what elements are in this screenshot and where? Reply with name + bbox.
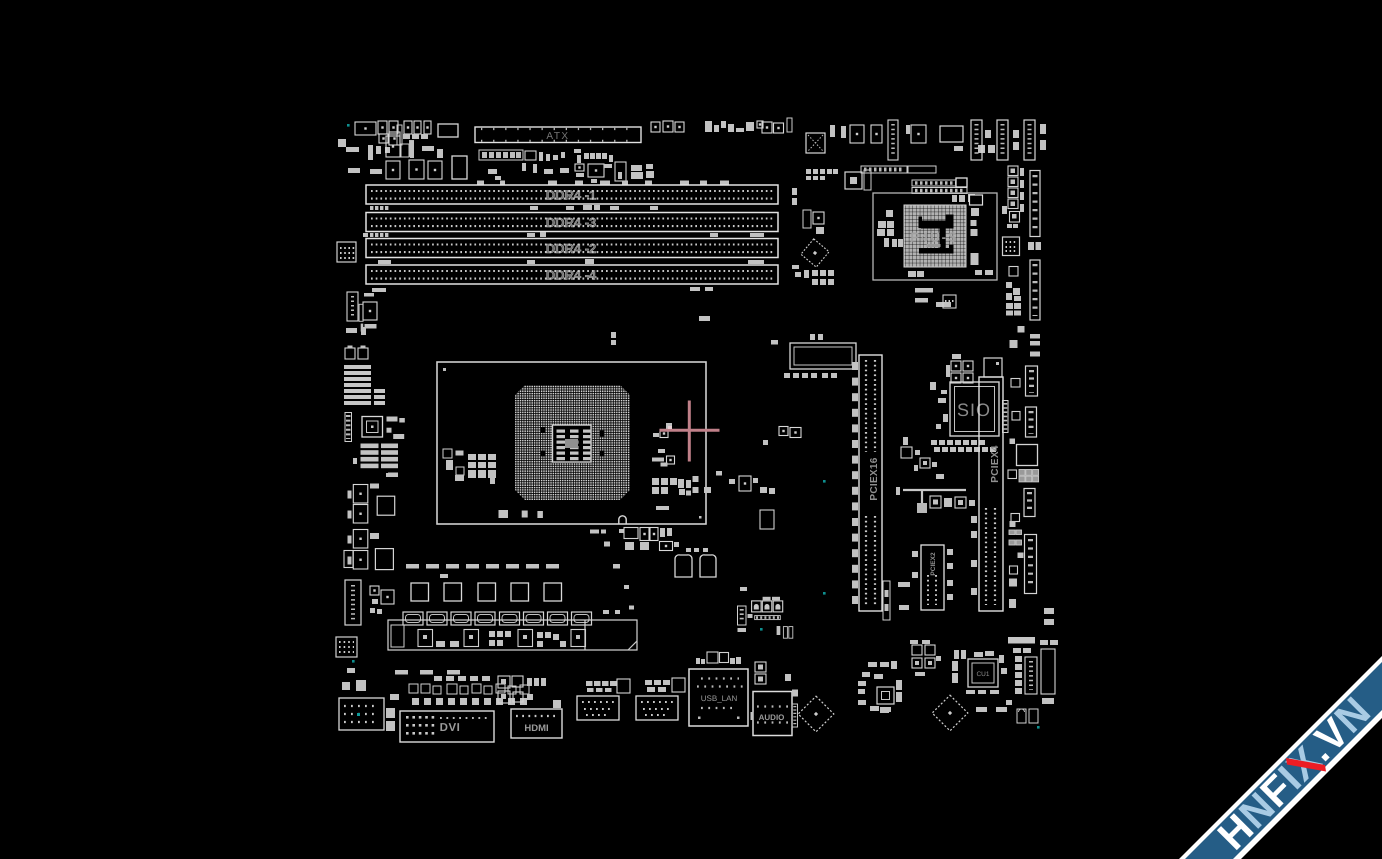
svg-text:DDR4 -1: DDR4 -1 (546, 187, 597, 202)
svg-text:USB_LAN: USB_LAN (701, 694, 738, 703)
svg-text:DDR4 -3: DDR4 -3 (546, 215, 597, 230)
svg-text:PCIEX16: PCIEX16 (869, 457, 880, 500)
svg-text:SIO: SIO (957, 400, 991, 420)
svg-text:PCIEX4: PCIEX4 (990, 445, 1001, 483)
svg-text:DDR4 -4: DDR4 -4 (546, 267, 597, 282)
svg-text:CU1: CU1 (976, 671, 989, 678)
svg-text:HDMI: HDMI (524, 723, 548, 734)
svg-text:P4U-S: P4U-S (910, 229, 958, 244)
svg-text:DDR4 -2: DDR4 -2 (546, 241, 597, 256)
svg-text:DVI: DVI (440, 722, 461, 734)
svg-text:PCIEX2: PCIEX2 (930, 552, 937, 576)
svg-text:ATX: ATX (546, 131, 569, 142)
svg-text:AUDIO: AUDIO (759, 713, 785, 722)
